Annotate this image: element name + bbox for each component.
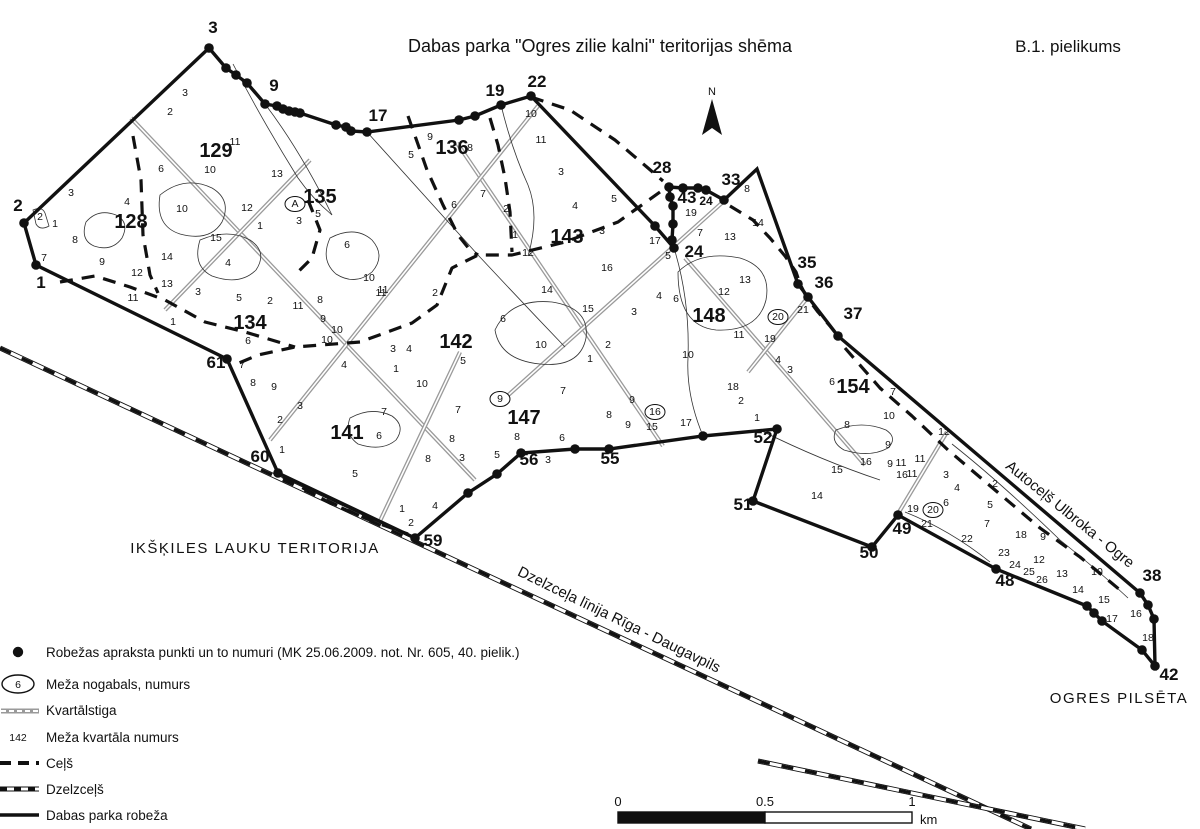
compartment-number: 3	[68, 187, 74, 199]
compartment-number: 2	[738, 395, 744, 407]
compartment-number: 9	[1040, 531, 1046, 543]
compartment-number: 11	[293, 300, 304, 312]
compartment-number: 15	[1098, 594, 1110, 606]
compartment-number: 5	[665, 250, 671, 262]
compartment-number: 14	[1072, 584, 1084, 596]
compartment-number: 11	[536, 134, 547, 146]
map-numbers-layer: 3211101363410121512187912141334115211816…	[13, 18, 1178, 684]
boundary-point-dot	[526, 91, 536, 101]
compartment-number: 6	[673, 293, 679, 305]
compartment-number: 4	[656, 290, 662, 302]
compartment-number: 25	[1023, 566, 1035, 578]
compartment-number: 6	[559, 432, 565, 444]
legend-kvartals-number: 142	[9, 732, 27, 744]
compartment-number: 1	[52, 218, 58, 230]
compartment-number: 17	[680, 417, 692, 429]
boundary-point-number: 2	[13, 196, 22, 215]
boundary-point-number: 61	[207, 353, 226, 372]
legend-item-railway: Dzelzceļš	[46, 782, 104, 797]
boundary-point-dot	[273, 468, 283, 478]
compartment-number: 1	[257, 220, 263, 232]
compartment-number: 3	[599, 225, 605, 237]
map-page: 3211101363410121512187912141334115211816…	[0, 0, 1200, 829]
boundary-point-number: 19	[486, 81, 505, 100]
compartment-number: 12	[718, 286, 730, 298]
compartment-number: 16	[649, 406, 661, 418]
boundary-point-dot	[410, 533, 420, 543]
compartment-number: 10	[204, 164, 216, 176]
legend-point-icon	[13, 647, 23, 657]
compartment-number: 9	[99, 256, 105, 268]
compartment-number: 21	[921, 518, 933, 530]
compartment-number: 3	[631, 306, 637, 318]
scale-bar-empty	[765, 812, 912, 823]
legend-nogabals-number: 6	[15, 679, 21, 691]
quarter-number: 142	[439, 331, 472, 353]
legend-item-kvartals: Meža kvartāla numurs	[46, 730, 179, 745]
compartment-number: 3	[558, 166, 564, 178]
roads-layer	[60, 97, 1120, 590]
boundary-point-dot	[668, 219, 678, 229]
compartment-number: 8	[844, 419, 850, 431]
compartment-number: 1	[754, 412, 760, 424]
boundary-point-number: 22	[528, 72, 547, 91]
compartment-number: 10	[525, 108, 537, 120]
compartment-number: 11	[915, 453, 926, 465]
compartment-outline	[367, 132, 565, 347]
quarter-number: 135	[303, 186, 336, 208]
compartment-number: 10	[416, 378, 428, 390]
ikskiles-territory-label: IKŠĶILES LAUKU TERITORIJA	[130, 540, 380, 557]
compartment-number: 7	[697, 227, 703, 239]
boundary-point-dot	[221, 63, 231, 73]
compartment-number: 14	[811, 490, 823, 502]
compartment-number: 6	[829, 376, 835, 388]
boundary-point-dot	[496, 100, 506, 110]
compartment-number: 8	[514, 431, 520, 443]
compartment-number: 7	[381, 406, 387, 418]
north-label: N	[708, 86, 716, 98]
boundary-point-number: 60	[251, 447, 270, 466]
compartment-number: 10	[176, 203, 188, 215]
compartment-number: 3	[195, 286, 201, 298]
compartment-number: 3	[296, 215, 302, 227]
compartment-number: 4	[432, 500, 438, 512]
boundary-point-number: 35	[798, 253, 817, 272]
compartment-number: 13	[724, 231, 736, 243]
compartment-number: 8	[250, 377, 256, 389]
compartment-number: 12	[131, 267, 143, 279]
compartment-number: 7	[41, 252, 47, 264]
legend: Robežas apraksta punkti un to numuri (MK…	[0, 645, 520, 823]
compartment-number: 26	[1036, 574, 1048, 586]
boundary-point-number-small: 24	[699, 194, 713, 208]
compartment-number: 6	[451, 199, 457, 211]
compartment-number: 7	[480, 188, 486, 200]
boundary-point-dot	[665, 192, 675, 202]
compartment-number: 7	[455, 404, 461, 416]
compartment-number: 9	[887, 458, 893, 470]
road-dashed	[531, 97, 663, 181]
boundary-point-number: 24	[685, 242, 704, 261]
compartment-number: 17	[649, 235, 661, 247]
boundary-point-number: 50	[860, 543, 879, 562]
compartment-number: 8	[449, 433, 455, 445]
compartment-number: 12	[522, 247, 534, 259]
compartment-number: 20	[772, 311, 784, 323]
compartment-number: 10	[883, 410, 895, 422]
boundary-point-dot	[667, 235, 677, 245]
boundary-point-number: 17	[369, 106, 388, 125]
boundary-point-number: 59	[424, 531, 443, 550]
boundary-point-number: 33	[722, 170, 741, 189]
attachment-label: B.1. pielikums	[1015, 37, 1121, 56]
boundary-point-dot	[668, 201, 678, 211]
road-dashed	[490, 118, 512, 252]
legend-item-nogabals: Meža nogabals, numurs	[46, 677, 190, 692]
boundary-point-dot	[31, 260, 41, 270]
boundary-point-dot	[260, 99, 270, 109]
compartment-number: 8	[744, 183, 750, 195]
compartment-number: 4	[572, 200, 578, 212]
compartment-number: 16	[860, 456, 872, 468]
boundary-point-number: 48	[996, 571, 1015, 590]
boundary-point-number: 28	[653, 158, 672, 177]
north-arrow-icon	[702, 99, 722, 135]
boundary-point-dot	[204, 43, 214, 53]
compartment-number: 9	[497, 393, 503, 405]
compartment-number: 13	[271, 168, 283, 180]
compartment-number: 7	[239, 359, 245, 371]
compartment-number: 9	[320, 313, 326, 325]
compartment-number: 2	[992, 478, 998, 490]
compartment-number: 13	[1056, 568, 1068, 580]
boundary-point-dot	[772, 424, 782, 434]
boundary-point-dot	[1135, 588, 1145, 598]
boundary-point-dot	[793, 279, 803, 289]
quarter-number: 129	[199, 140, 232, 162]
boundary-point-dot	[833, 331, 843, 341]
compartment-number: 6	[245, 335, 251, 347]
boundary-point-number: 55	[601, 449, 620, 468]
compartment-number: 5	[494, 449, 500, 461]
compartment-number: 13	[739, 274, 751, 286]
compartment-number: 20	[927, 504, 939, 516]
compartment-number: 18	[727, 381, 739, 393]
compartment-number: 1	[399, 503, 405, 515]
compartment-number: 2	[432, 287, 438, 299]
boundary-point-number: 49	[893, 519, 912, 538]
boundary-point-dot	[295, 108, 305, 118]
compartment-number: 5	[352, 468, 358, 480]
compartment-number: 11	[907, 468, 918, 480]
quarter-number: 141	[330, 422, 363, 444]
compartment-number: 7	[984, 518, 990, 530]
compartment-number: 15	[582, 303, 594, 315]
compartment-number: 9	[625, 419, 631, 431]
boundary-point-dot	[1082, 601, 1092, 611]
boundary-point-number: 1	[36, 273, 45, 292]
boundary-point-number: 3	[208, 18, 217, 37]
compartment-number: 3	[943, 469, 949, 481]
compartment-number: 4	[775, 354, 781, 366]
compartment-number: 12	[938, 426, 950, 438]
compartment-number: 17	[1106, 613, 1118, 625]
compartment-number: 9	[271, 381, 277, 393]
compartment-number: 4	[341, 359, 347, 371]
compartment-number: 15	[646, 421, 658, 433]
compartment-number: 9	[629, 394, 635, 406]
compartment-number: 23	[998, 547, 1010, 559]
legend-item-road: Ceļš	[46, 756, 73, 771]
compartment-number: 4	[225, 257, 231, 269]
compartment-number: 7	[560, 385, 566, 397]
compartment-number: 1	[170, 316, 176, 328]
compartment-number: 5	[987, 499, 993, 511]
compartment-number: 2	[605, 339, 611, 351]
compartment-number: 6	[500, 313, 506, 325]
quarter-number: 143	[550, 226, 583, 248]
compartment-number: 1	[279, 444, 285, 456]
compartment-number: 24	[1009, 559, 1021, 571]
scale-tick-05: 0.5	[756, 794, 774, 809]
scale-unit: km	[920, 812, 937, 827]
boundary-point-dot	[664, 182, 674, 192]
boundary-point-dot	[492, 469, 502, 479]
compartment-number: 5	[460, 355, 466, 367]
compartment-number: 14	[541, 284, 553, 296]
compartment-number: 11	[896, 457, 907, 469]
compartment-number: 16	[1130, 608, 1142, 620]
compartment-number: 5	[611, 193, 617, 205]
boundary-point-dot	[719, 195, 729, 205]
boundary-point-dot	[470, 111, 480, 121]
quarter-number: 147	[507, 407, 540, 429]
compartment-number: 11	[128, 292, 139, 304]
boundary-point-dot	[803, 292, 813, 302]
boundary-point-number: 38	[1143, 566, 1162, 585]
compartment-number: 8	[606, 409, 612, 421]
legend-item-kvartalstiga: Kvartālstiga	[46, 703, 117, 718]
compartment-number: 4	[124, 196, 130, 208]
compartment-number: 2	[37, 211, 43, 223]
compartment-number: 15	[831, 464, 843, 476]
legend-item-points: Robežas apraksta punkti un to numuri (MK…	[46, 645, 520, 660]
scale-bar-filled	[618, 812, 765, 823]
boundary-point-number: 52	[754, 428, 773, 447]
compartment-number: 19	[764, 333, 776, 345]
compartment-number: 9	[427, 131, 433, 143]
boundary-point-dot	[1089, 608, 1099, 618]
railway-name-label: Dzelzceļa līnija Rīga - Daugavpils	[515, 563, 723, 676]
boundary-point-dot	[1149, 614, 1159, 624]
scale-bar: 0 0.5 1 km	[614, 794, 937, 827]
compartment-number: 4	[954, 482, 960, 494]
compartment-number: 8	[72, 234, 78, 246]
boundary-point-dot	[331, 120, 341, 130]
boundary-point-dot	[1143, 600, 1153, 610]
compartment-number: 10	[535, 339, 547, 351]
compartment-number: 2	[267, 295, 273, 307]
quartal-line-core	[505, 201, 724, 398]
scale-tick-1: 1	[908, 794, 915, 809]
compartment-number: 3	[390, 343, 396, 355]
compartment-number: 3	[545, 454, 551, 466]
compartment-number: 10	[331, 324, 343, 336]
map-title: Dabas parka "Ogres zilie kalni" teritori…	[408, 36, 793, 56]
compartment-number: 19	[907, 503, 919, 515]
compartment-number: 6	[943, 497, 949, 509]
boundary-point-dot	[698, 431, 708, 441]
compartment-number: 4	[406, 343, 412, 355]
boundary-point-dot	[19, 218, 29, 228]
compartment-number: 8	[425, 453, 431, 465]
compartment-number: 1	[587, 353, 593, 365]
compartment-number: 10	[321, 334, 333, 346]
boundary-point-dot	[231, 70, 241, 80]
compartment-number: 6	[158, 163, 164, 175]
compartment-number: 21	[797, 304, 809, 316]
compartment-number: 5	[315, 208, 321, 220]
compartment-number: 2	[167, 106, 173, 118]
compartment-number: A	[291, 198, 298, 210]
boundary-point-number: 42	[1160, 665, 1179, 684]
compartment-number: 13	[161, 278, 173, 290]
compartment-number: 7	[890, 386, 896, 398]
compartment-number: 3	[459, 452, 465, 464]
compartment-number: 19	[685, 207, 697, 219]
compartment-number: 10	[1091, 566, 1103, 578]
compartment-outline	[760, 430, 880, 480]
compartment-number: 1	[512, 229, 518, 241]
compartment-number: 3	[297, 400, 303, 412]
compartment-number: 14	[161, 251, 173, 263]
compartment-number: 12	[241, 202, 253, 214]
boundary-point-dot	[242, 78, 252, 88]
compartment-number: 2	[408, 517, 414, 529]
scale-tick-0: 0	[614, 794, 621, 809]
ogre-city-label: OGRES PILSĒTA	[1050, 690, 1188, 707]
compartment-number: 10	[363, 272, 375, 284]
quarter-number: 148	[692, 305, 725, 327]
boundary-point-number: 37	[844, 304, 863, 323]
quartal-line-core	[270, 106, 538, 440]
boundary-point-dot	[362, 127, 372, 137]
compartment-number: 18	[1015, 529, 1027, 541]
compartment-number: 8	[317, 294, 323, 306]
compartment-number: 11	[734, 329, 745, 341]
compartment-number: 9	[885, 439, 891, 451]
compartment-number: 10	[682, 349, 694, 361]
legend-item-boundary: Dabas parka robeža	[46, 808, 168, 823]
compartment-number: 14	[752, 217, 764, 229]
compartment-number: 6	[344, 239, 350, 251]
quarter-number: 134	[233, 312, 267, 334]
compartment-number: 22	[961, 533, 973, 545]
boundary-point-dot	[650, 221, 660, 231]
compartment-outline	[905, 512, 990, 562]
compartment-number: 2	[277, 414, 283, 426]
compartment-number: 11	[378, 284, 389, 296]
boundary-point-dot	[570, 444, 580, 454]
compartment-number: 5	[236, 292, 242, 304]
compartment-number: 3	[182, 87, 188, 99]
compartment-number: 2	[503, 203, 509, 215]
quarter-number: 154	[836, 376, 870, 398]
boundary-point-dot	[1137, 645, 1147, 655]
boundary-point-dot	[1150, 661, 1160, 671]
boundary-point-dot	[454, 115, 464, 125]
compartment-number: 15	[210, 232, 222, 244]
boundary-point-dot	[346, 126, 356, 136]
quarter-number: 128	[114, 211, 147, 233]
quarter-number: 136	[435, 137, 468, 159]
compartment-number: 16	[601, 262, 613, 274]
boundary-point-number: 51	[734, 495, 753, 514]
compartment-number: 12	[1033, 554, 1045, 566]
compartment-number: 1	[393, 363, 399, 375]
boundary-point-number: 43	[678, 188, 697, 207]
boundary-point-dot	[463, 488, 473, 498]
boundary-point-number: 36	[815, 273, 834, 292]
compartment-number: 6	[376, 430, 382, 442]
park-map-canvas: 3211101363410121512187912141334115211816…	[0, 0, 1200, 829]
compartment-number: 5	[408, 149, 414, 161]
compartment-number: 18	[1142, 632, 1154, 644]
boundary-point-number: 9	[269, 76, 278, 95]
compartment-number: 3	[787, 364, 793, 376]
boundary-point-number: 56	[520, 450, 539, 469]
north-arrow: N	[702, 86, 722, 135]
